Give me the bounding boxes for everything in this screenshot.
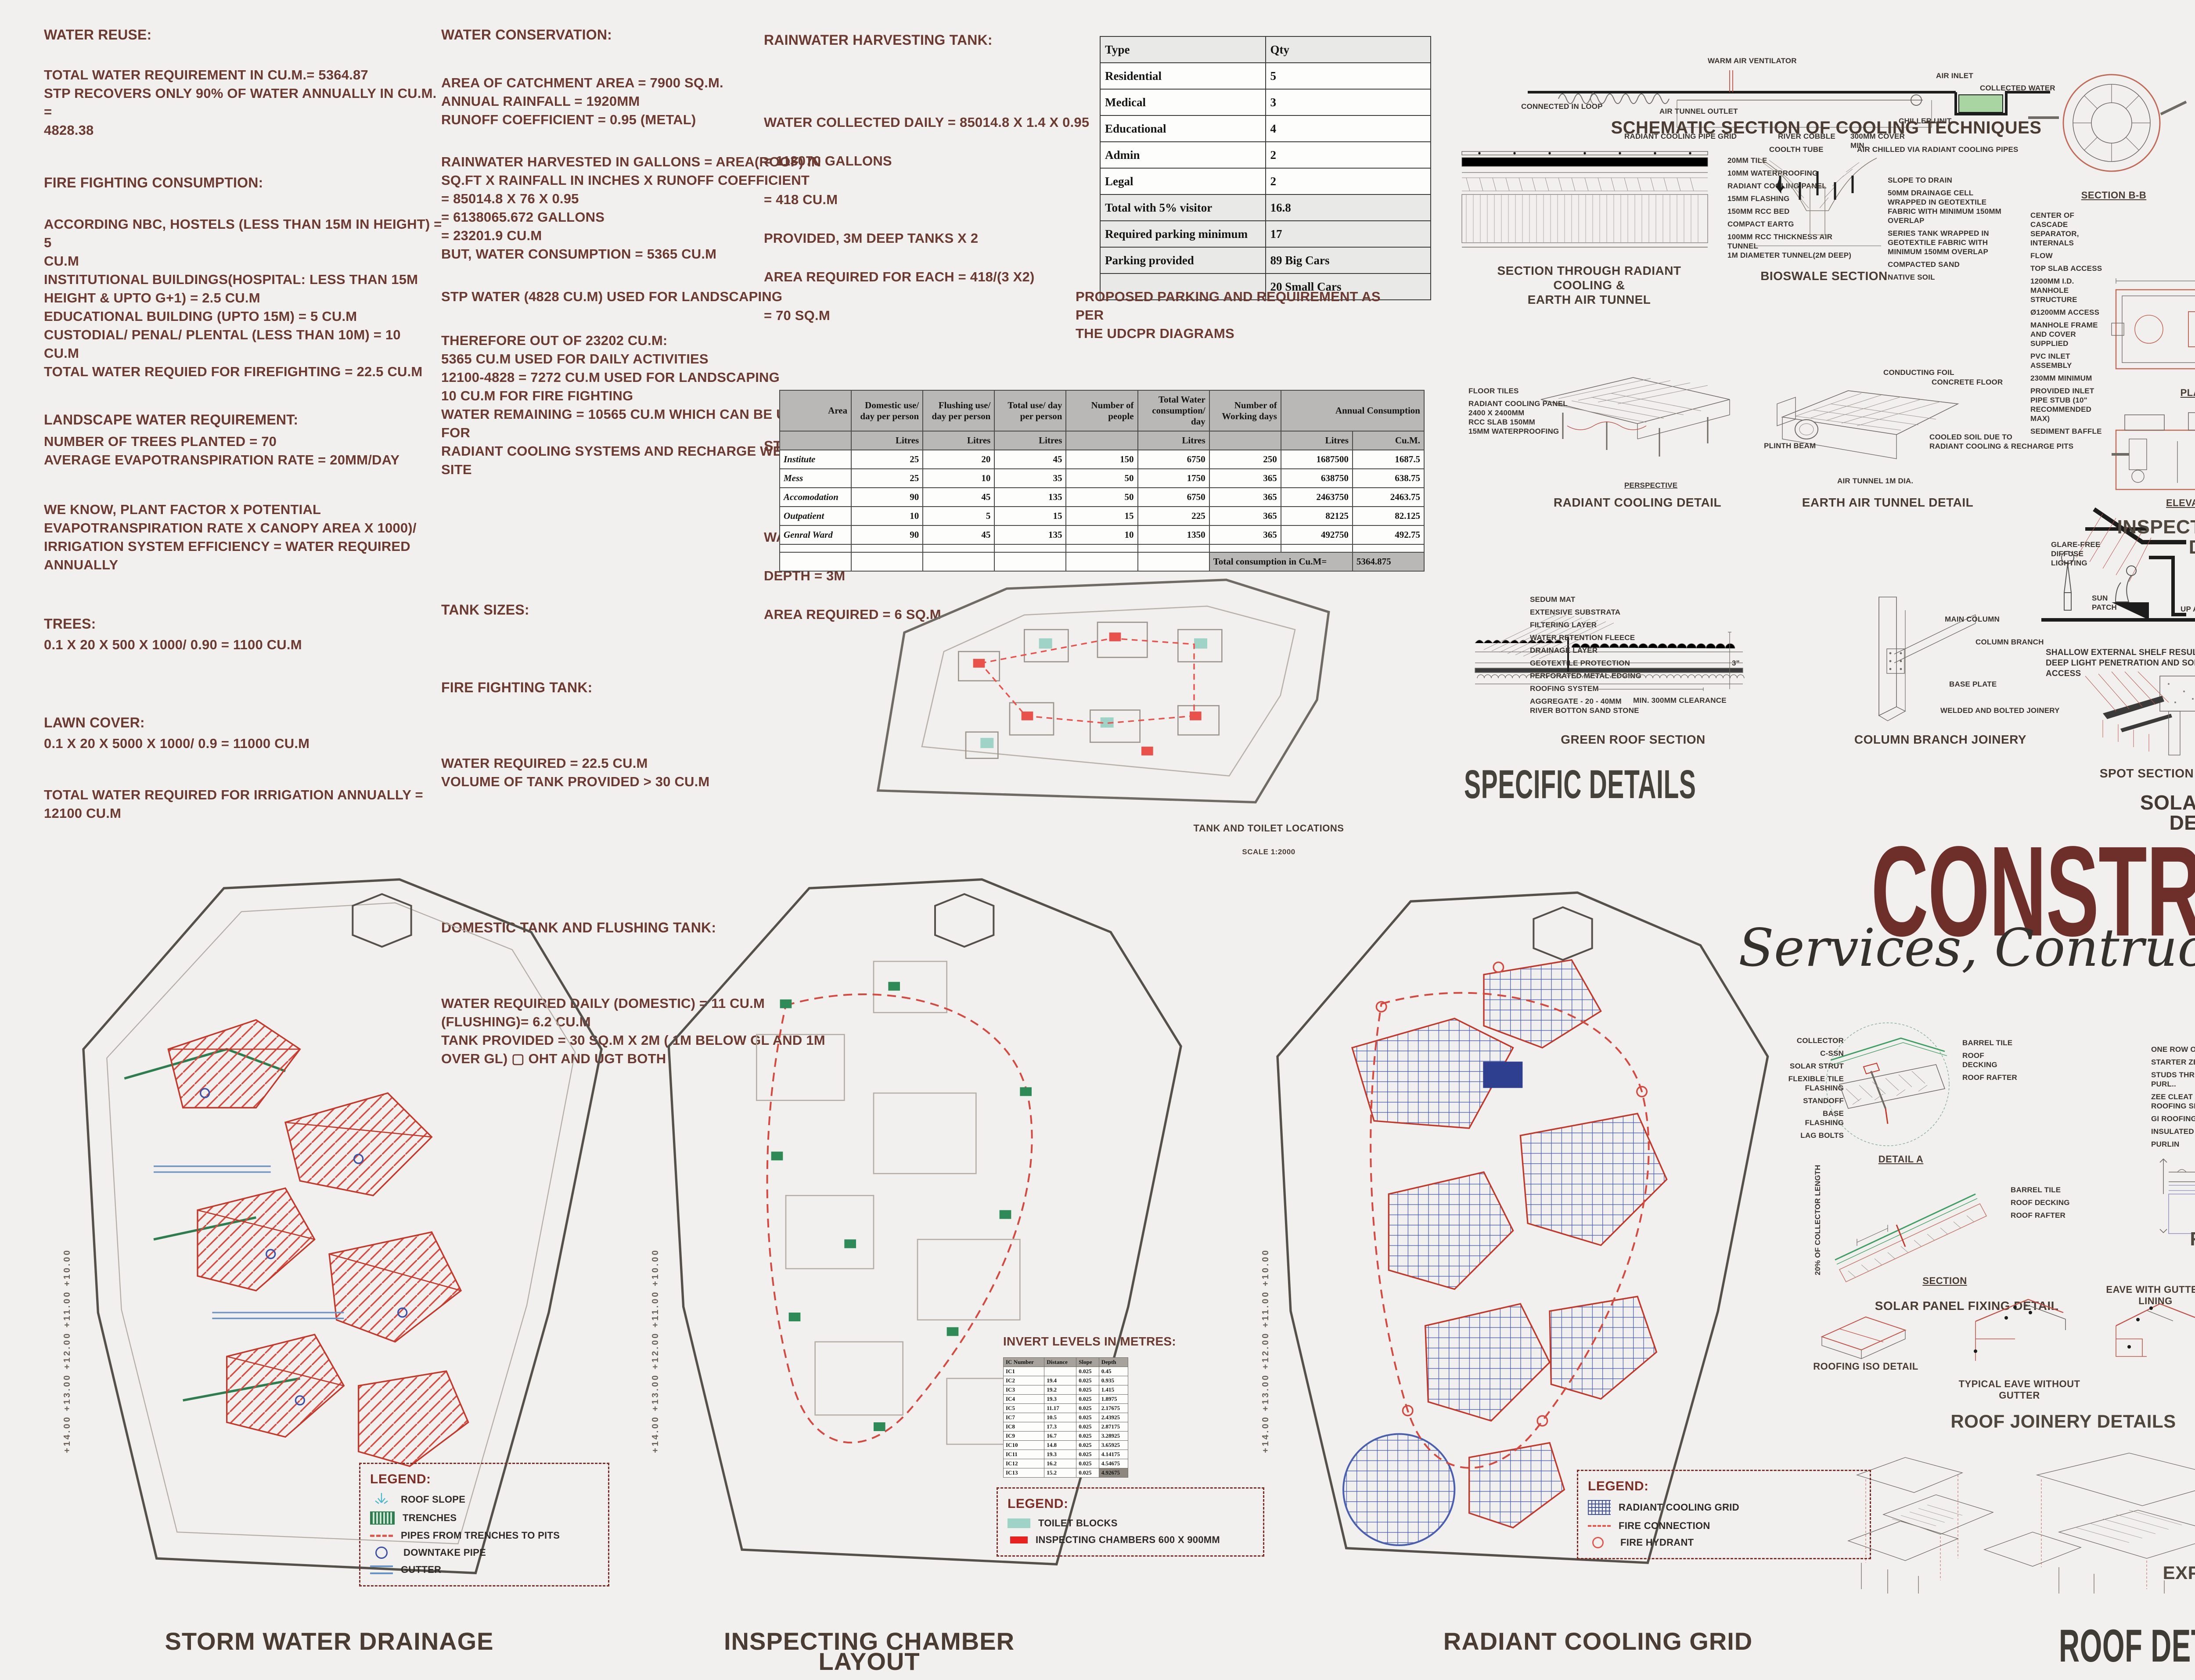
callout-item: INSULATED ROOFING PANELS bbox=[2151, 1127, 2195, 1136]
storm-plan-caption: STORM WATER DRAINAGE bbox=[145, 1631, 514, 1651]
bioswale-callout-river-cobble: RIVER COBBLE bbox=[1778, 132, 1835, 141]
landscape-heading: LANDSCAPE WATER REQUIREMENT: bbox=[44, 410, 439, 429]
callout-item: COMPACTED SAND bbox=[1888, 260, 2002, 269]
table-cell: 4 bbox=[1266, 115, 1431, 142]
inspection-plan-view-diagram bbox=[2112, 281, 2195, 378]
callout-item: 230MM MINIMUM bbox=[2030, 374, 2105, 383]
section-bb-caption: SECTION B-B bbox=[2059, 190, 2169, 201]
table-cell bbox=[851, 544, 923, 552]
table-cell: IC7 bbox=[1004, 1413, 1044, 1422]
spot-section-diagram bbox=[2076, 672, 2195, 759]
table-row: IC1014.80.0253.65925 bbox=[1004, 1441, 1128, 1450]
table-cell: Domestic use/ day per person bbox=[851, 390, 923, 431]
table-cell: 0.025 bbox=[1076, 1422, 1099, 1432]
callout-item: COLLECTOR bbox=[1782, 1036, 1844, 1045]
detail-a-caption: DETAIL A bbox=[1857, 1154, 1945, 1165]
table-cell: Distance bbox=[1044, 1358, 1076, 1367]
table-cell: 35 bbox=[994, 469, 1066, 488]
earth-tunnel-caption: EARTH AIR TUNNEL DETAIL bbox=[1782, 495, 1993, 510]
callout-item: STUDS THROUGH CLEAT INTO PURL.. bbox=[2151, 1070, 2195, 1089]
table-cell: Qty bbox=[1266, 36, 1431, 63]
table-cell: Area bbox=[780, 390, 851, 431]
roof-fixing-section-diagram bbox=[2151, 1141, 2195, 1242]
table-cell: 1.415 bbox=[1099, 1385, 1128, 1395]
table-cell: 11.17 bbox=[1044, 1404, 1076, 1413]
table-cell: IC2 bbox=[1004, 1376, 1044, 1385]
table-row: Required parking minimum17 bbox=[1100, 221, 1431, 247]
rain-tank-heading: RAINWATER HARVESTING TANK: bbox=[764, 31, 1115, 49]
shallow-shelf-callout-sunpatch: SUN PATCH bbox=[2092, 594, 2117, 612]
table-cell: 365 bbox=[1209, 488, 1281, 507]
storm-legend-label-0: ROOF SLOPE bbox=[401, 1494, 465, 1505]
table-cell bbox=[1209, 431, 1281, 450]
table-cell: 3.28925 bbox=[1099, 1432, 1128, 1441]
table-cell: 0.025 bbox=[1076, 1441, 1099, 1450]
table-cell: 16.8 bbox=[1266, 194, 1431, 221]
spot-section-caption: SPOT SECTION bbox=[2063, 766, 2195, 781]
table-row: Mess251035501750365638750638.75 bbox=[780, 469, 1424, 488]
table-cell: Required parking minimum bbox=[1100, 221, 1266, 247]
storm-legend-roof-slope: ROOF SLOPE bbox=[370, 1493, 598, 1506]
green-roof-3in-dim: 3" bbox=[1732, 658, 1740, 668]
table-cell: IC5 bbox=[1004, 1404, 1044, 1413]
table-cell: 19.3 bbox=[1044, 1450, 1076, 1459]
table-cell bbox=[1138, 552, 1209, 571]
earth-tunnel-callout-air-tunnel: AIR TUNNEL 1M DIA. bbox=[1837, 476, 1913, 486]
column-branch-callout-main: MAIN COLUMN bbox=[1945, 615, 2000, 624]
table-row: Outpatient10515152253658212582.125 bbox=[780, 507, 1424, 525]
table-cell: IC9 bbox=[1004, 1432, 1044, 1441]
table-cell: IC11 bbox=[1004, 1450, 1044, 1459]
storm-legend-downtake: DOWNTAKE PIPE bbox=[370, 1547, 598, 1559]
table-cell: 135 bbox=[994, 488, 1066, 507]
table-cell: 6750 bbox=[1138, 488, 1209, 507]
table-cell: 365 bbox=[1209, 525, 1281, 544]
downtake-pipe-icon bbox=[375, 1547, 388, 1559]
table-cell: 365 bbox=[1209, 507, 1281, 525]
table-cell: 0.935 bbox=[1099, 1376, 1128, 1385]
callout-item: C-SSN bbox=[1782, 1049, 1844, 1058]
table-cell bbox=[923, 552, 994, 571]
table-cell: 0.025 bbox=[1076, 1459, 1099, 1468]
table-cell: 0.45 bbox=[1099, 1367, 1128, 1376]
table-cell: 250 bbox=[1209, 450, 1281, 469]
callout-item: BARREL TILE bbox=[2011, 1185, 2072, 1194]
storm-legend-label-4: GUTTER bbox=[401, 1564, 441, 1576]
table-row: Admin2 bbox=[1100, 142, 1431, 168]
radiant-legend: LEGEND: RADIANT COOLING GRID FIRE CONNEC… bbox=[1577, 1470, 1871, 1559]
section-through-caption: SECTION THROUGH RADIANT COOLING & EARTH … bbox=[1466, 263, 1712, 307]
table-cell: IC4 bbox=[1004, 1395, 1044, 1404]
tank-toilet-caption-line1: TANK AND TOILET LOCATIONS bbox=[1194, 823, 1344, 834]
inspection-callouts-left: CENTER OF CASCADE SEPARATOR, INTERNALSFL… bbox=[2030, 211, 2105, 439]
roof-fixing-caption: ROOF FIXING SECTION bbox=[2177, 1229, 2195, 1249]
table-cell: Admin bbox=[1100, 142, 1266, 168]
callout-item: ROOF RAFTER bbox=[2011, 1211, 2072, 1220]
callout-item: EXTENSIVE SUBSTRATA bbox=[1530, 608, 1653, 617]
table-cell: 0.025 bbox=[1076, 1468, 1099, 1478]
table-row: Genral Ward9045135101350365492750492.75 bbox=[780, 525, 1424, 544]
table-cell: 14.8 bbox=[1044, 1441, 1076, 1450]
chamber-legend-label-1: INSPECTING CHAMBERS 600 X 900MM bbox=[1036, 1534, 1220, 1546]
table-cell: Outpatient bbox=[780, 507, 851, 525]
table-row: IC1119.30.0254.14175 bbox=[1004, 1450, 1128, 1459]
table-row: Total with 5% visitor16.8 bbox=[1100, 194, 1431, 221]
chamber-legend-ic: INSPECTING CHAMBERS 600 X 900MM bbox=[1008, 1534, 1253, 1546]
shallow-shelf-callout-glarefree: GLARE-FREE DIFFUSE LIGHTING bbox=[2051, 540, 2101, 568]
column-branch-callout-welded: WELDED AND BOLTED JOINERY bbox=[1940, 706, 2060, 715]
rain-tank-body: WATER COLLECTED DAILY = 85014.8 X 1.4 X … bbox=[764, 103, 1119, 335]
callout-item: FLEXIBLE TILE FLASHING bbox=[1782, 1074, 1844, 1093]
table-cell: 4.14175 bbox=[1099, 1450, 1128, 1459]
table-cell: 2.87175 bbox=[1099, 1422, 1128, 1432]
table-cell bbox=[780, 431, 851, 450]
fire-connection-icon bbox=[1588, 1525, 1611, 1527]
table-row: Total consumption in Cu.M=5364.875 bbox=[780, 552, 1424, 571]
radiant-earth-tunnel-section-diagram bbox=[1462, 147, 1712, 255]
radiant-elevation-markers: +14.00 +13.00 +12.00 +11.00 +10.00 bbox=[1261, 1248, 1271, 1453]
table-cell: 90 bbox=[851, 525, 923, 544]
storm-legend-label-2: PIPES FROM TRENCHES TO PITS bbox=[401, 1530, 560, 1541]
table-cell: 19.4 bbox=[1044, 1376, 1076, 1385]
table-cell bbox=[1066, 552, 1137, 571]
table-cell: 638750 bbox=[1281, 469, 1353, 488]
table-row: IC219.40.0250.935 bbox=[1004, 1376, 1128, 1385]
table-cell: 25 bbox=[851, 469, 923, 488]
table-cell: Slope bbox=[1076, 1358, 1099, 1367]
radiant-legend-grid: RADIANT COOLING GRID bbox=[1588, 1500, 1860, 1515]
table-cell: 17 bbox=[1266, 221, 1431, 247]
table-row: IC319.20.0251.415 bbox=[1004, 1385, 1128, 1395]
schematic-callout-collected-water: COLLECTED WATER bbox=[1980, 83, 2055, 93]
table-cell: 15.2 bbox=[1044, 1468, 1076, 1478]
table-cell bbox=[1353, 544, 1424, 552]
schematic-callout-air-inlet: AIR INLET bbox=[1936, 71, 1973, 80]
callout-item: FILTERING LAYER bbox=[1530, 620, 1653, 630]
table-row: IC511.170.0252.17675 bbox=[1004, 1404, 1128, 1413]
callout-item: GEOTEXTILE PROTECTION bbox=[1530, 658, 1653, 668]
table-cell: Litres bbox=[1138, 431, 1209, 450]
table-cell: 0.025 bbox=[1076, 1367, 1099, 1376]
table-cell: 1687.5 bbox=[1353, 450, 1424, 469]
table-cell: Litres bbox=[923, 431, 994, 450]
callout-item: FLOOR TILES bbox=[1468, 386, 1578, 396]
table-row: IC916.70.0253.28925 bbox=[1004, 1432, 1128, 1441]
roofing-iso-caption: ROOFING ISO DETAIL bbox=[1809, 1361, 1923, 1372]
earth-tunnel-callout-foil: CONDUCTING FOIL bbox=[1883, 368, 1954, 377]
table-header-row: AreaDomestic use/ day per personFlushing… bbox=[780, 390, 1424, 431]
callout-item: MANHOLE FRAME AND COVER SUPPLIED bbox=[2030, 320, 2105, 348]
storm-legend: LEGEND: ROOF SLOPE TRENCHES PIPES FROM T… bbox=[359, 1463, 609, 1586]
specific-details-big-label: SPECIFIC DETAILS bbox=[1464, 762, 1839, 808]
trees-heading: TREES: bbox=[44, 615, 439, 633]
table-row: IC10.0250.45 bbox=[1004, 1367, 1128, 1376]
table-cell: 1750 bbox=[1138, 469, 1209, 488]
green-roof-clearance-dim: MIN. 300MM CLEARANCE bbox=[1633, 696, 1727, 705]
roofing-iso-diagram bbox=[1813, 1310, 1910, 1359]
solar-panel-fixing-section-diagram bbox=[1831, 1176, 2006, 1273]
table-cell: 0.025 bbox=[1076, 1376, 1099, 1385]
green-roof-caption: GREEN ROOF SECTION bbox=[1510, 732, 1756, 747]
table-cell: 50 bbox=[1066, 488, 1137, 507]
fire-tank-heading: FIRE FIGHTING TANK: bbox=[441, 678, 836, 697]
radiant-grid-icon bbox=[1588, 1500, 1611, 1515]
pipes-icon bbox=[370, 1535, 393, 1537]
table-cell: 1.8975 bbox=[1099, 1395, 1128, 1404]
landscape-body: NUMBER OF TREES PLANTED = 70 AVERAGE EVA… bbox=[44, 432, 443, 469]
fire-hydrant-icon bbox=[1592, 1537, 1604, 1548]
table-cell: Number of Working days bbox=[1209, 390, 1281, 431]
radiant-legend-label-1: FIRE CONNECTION bbox=[1619, 1520, 1710, 1532]
radiant-legend-label-2: FIRE HYDRANT bbox=[1620, 1537, 1694, 1548]
bioswale-diagram bbox=[1754, 145, 1881, 255]
table-cell: 20 bbox=[923, 450, 994, 469]
table-cell: IC12 bbox=[1004, 1459, 1044, 1468]
table-cell: 16.2 bbox=[1044, 1459, 1076, 1468]
table-cell: 5 bbox=[923, 507, 994, 525]
table-cell: 82.125 bbox=[1353, 507, 1424, 525]
table-cell: IC13 bbox=[1004, 1468, 1044, 1478]
table-cell: Residential bbox=[1100, 63, 1266, 89]
radiant-legend-fire-connection: FIRE CONNECTION bbox=[1588, 1520, 1860, 1532]
table-cell: 2463750 bbox=[1281, 488, 1353, 507]
weknow-body: WE KNOW, PLANT FACTOR X POTENTIAL EVAPOT… bbox=[44, 500, 443, 574]
table-cell: 1687500 bbox=[1281, 450, 1353, 469]
table-cell: 10.5 bbox=[1044, 1413, 1076, 1422]
trees-body: 0.1 X 20 X 500 X 1000/ 0.90 = 1100 CU.M bbox=[44, 636, 443, 654]
schematic-callout-connected-loop: CONNECTED IN LOOP bbox=[1521, 102, 1603, 111]
table-cell: 2.17675 bbox=[1099, 1404, 1128, 1413]
table-row: Educational4 bbox=[1100, 115, 1431, 142]
table-cell: 82125 bbox=[1281, 507, 1353, 525]
roof-fixing-callouts: ONE ROW OF TAPE SEALANTSTARTER ZEE CLEAT… bbox=[2151, 1045, 2195, 1152]
earth-tunnel-callout-plinth: PLINTH BEAM bbox=[1764, 441, 1816, 450]
table-cell: Genral Ward bbox=[780, 525, 851, 544]
schematic-callout-warm-air-ventilator: WARM AIR VENTILATOR bbox=[1708, 56, 1797, 65]
table-cell: 10 bbox=[1066, 525, 1137, 544]
callout-item: 1200MM I.D. MANHOLE STRUCTURE bbox=[2030, 277, 2105, 304]
table-cell: 45 bbox=[923, 488, 994, 507]
table-cell: IC1 bbox=[1004, 1367, 1044, 1376]
inspection-chamber-caption: INSPECTION CHAMBER DETAILS bbox=[2094, 517, 2195, 558]
gutter-icon bbox=[370, 1565, 393, 1574]
table-cell: 492750 bbox=[1281, 525, 1353, 544]
chamber-elevation-markers: +14.00 +13.00 +12.00 +11.00 +10.00 bbox=[651, 1248, 661, 1453]
table-cell: 90 bbox=[851, 488, 923, 507]
table-cell bbox=[923, 544, 994, 552]
table-cell bbox=[994, 552, 1066, 571]
table-cell: 0.025 bbox=[1076, 1404, 1099, 1413]
table-row bbox=[780, 544, 1424, 552]
callout-item: TOP SLAB ACCESS bbox=[2030, 264, 2105, 273]
callout-item: RADIANT COOLING PANEL 2400 X 2400MM RCC … bbox=[1468, 399, 1578, 436]
table-cell: 45 bbox=[923, 525, 994, 544]
toilet-blocks-icon bbox=[1008, 1518, 1030, 1528]
roof-details-big-label: ROOF DETAILS bbox=[2059, 1620, 2195, 1673]
table-cell: 2 bbox=[1266, 168, 1431, 194]
callout-item: SEDUM MAT bbox=[1530, 595, 1653, 604]
table-cell: IC8 bbox=[1004, 1422, 1044, 1432]
chamber-plan-caption: INSPECTING CHAMBER LAYOUT bbox=[676, 1631, 1062, 1672]
inspection-elevation-diagram bbox=[2112, 410, 2195, 494]
lawn-body: 0.1 X 20 X 5000 X 1000/ 0.9 = 11000 CU.M bbox=[44, 734, 443, 753]
table-cell: Parking provided bbox=[1100, 247, 1266, 273]
callout-item: ZEE CLEAT AND BENT ROOFING SHEET bbox=[2151, 1092, 2195, 1111]
earth-tunnel-callout-floor: CONCRETE FLOOR bbox=[1932, 378, 2003, 387]
table-cell: 2463.75 bbox=[1353, 488, 1424, 507]
trenches-icon bbox=[370, 1511, 395, 1525]
table-row: IC419.30.0251.8975 bbox=[1004, 1395, 1128, 1404]
table-cell: 10 bbox=[923, 469, 994, 488]
bioswale-caption: BIOSWALE SECTION bbox=[1752, 269, 1896, 283]
solar-fix-section-callouts: BARREL TILEROOF DECKINGROOF RAFTER bbox=[2011, 1185, 2072, 1223]
table-header-row: LitresLitresLitresLitresLitresCu.M. bbox=[780, 431, 1424, 450]
table-cell: Cu.M. bbox=[1353, 431, 1424, 450]
table-cell: Total consumption in Cu.M= bbox=[1209, 552, 1353, 571]
table-cell: 365 bbox=[1209, 469, 1281, 488]
inspection-section-bb-diagram bbox=[2055, 66, 2169, 180]
callout-item: SEDIMENT BAFFLE bbox=[2030, 427, 2105, 436]
invert-levels-table: IC NumberDistanceSlopeDepthIC10.0250.45I… bbox=[1003, 1357, 1128, 1478]
eave-gutter-caption: EAVE WITH GUTTER LINING bbox=[2090, 1284, 2195, 1307]
table-cell: 19.3 bbox=[1044, 1395, 1076, 1404]
table-cell: IC3 bbox=[1004, 1385, 1044, 1395]
table-cell: Educational bbox=[1100, 115, 1266, 142]
table-row: Medical3 bbox=[1100, 89, 1431, 115]
callout-item: STARTER ZEE CLEAT bbox=[2151, 1058, 2195, 1067]
solar-fix-rot-label: 20% OF COLLECTOR LENGTH bbox=[1813, 1165, 1822, 1275]
water-consumption-table: AreaDomestic use/ day per personFlushing… bbox=[779, 390, 1425, 572]
table-cell: 150 bbox=[1066, 450, 1137, 469]
table-cell: Flushing use/ day per person bbox=[923, 390, 994, 431]
storm-legend-title: LEGEND: bbox=[370, 1472, 598, 1487]
radiant-legend-label-0: RADIANT COOLING GRID bbox=[1619, 1502, 1739, 1513]
table-cell: 0.025 bbox=[1076, 1450, 1099, 1459]
storm-legend-trenches: TRENCHES bbox=[370, 1511, 598, 1525]
bioswale-callout-cover: 300MM COVER MIN. bbox=[1850, 132, 1905, 150]
table-cell bbox=[994, 544, 1066, 552]
roof-joinery-caption: ROOF JOINERY DETAILS bbox=[1940, 1411, 2186, 1432]
table-row: Parking provided89 Big Cars bbox=[1100, 247, 1431, 273]
tank-toilet-site-plan bbox=[834, 571, 1339, 810]
table-cell: 5 bbox=[1266, 63, 1431, 89]
table-cell: Litres bbox=[1281, 431, 1353, 450]
table-cell: Total use/ day per person bbox=[994, 390, 1066, 431]
board-subtitle: Services, Contruction Techniques & Detai… bbox=[1738, 917, 2195, 978]
callout-item: SOLAR STRUT bbox=[1782, 1061, 1844, 1071]
callout-item: Ø1200MM ACCESS bbox=[2030, 308, 2105, 317]
fire-tank-body: WATER REQUIRED = 22.5 CU.M VOLUME OF TAN… bbox=[441, 754, 841, 791]
fire-fighting-heading: FIRE FIGHTING CONSUMPTION: bbox=[44, 173, 439, 192]
callout-item: PURLIN bbox=[2151, 1140, 2195, 1149]
callout-item: SERIES TANK WRAPPED IN GEOTEXTILE FABRIC… bbox=[1888, 229, 2002, 256]
schematic-callout-air-tunnel-outlet: AIR TUNNEL OUTLET bbox=[1659, 107, 1738, 116]
table-cell: Total with 5% visitor bbox=[1100, 194, 1266, 221]
table-cell: 135 bbox=[994, 525, 1066, 544]
table-row: IC1315.20.0254.92675 bbox=[1004, 1468, 1128, 1478]
storm-legend-pipes: PIPES FROM TRENCHES TO PITS bbox=[370, 1530, 598, 1541]
storm-legend-gutter: GUTTER bbox=[370, 1564, 598, 1576]
table-cell: 3 bbox=[1266, 89, 1431, 115]
table-row: IC817.30.0252.87175 bbox=[1004, 1422, 1128, 1432]
table-cell: Mess bbox=[780, 469, 851, 488]
table-cell: 3.65925 bbox=[1099, 1441, 1128, 1450]
column-branch-caption: COLUMN BRANCH JOINERY bbox=[1844, 732, 2037, 747]
table-cell bbox=[1066, 431, 1137, 450]
table-cell: Litres bbox=[994, 431, 1066, 450]
callout-item: STANDOFF bbox=[1782, 1096, 1844, 1105]
table-cell: 0.025 bbox=[1076, 1432, 1099, 1441]
table-cell: 2 bbox=[1266, 142, 1431, 168]
callout-item: BARREL TILE bbox=[1962, 1038, 2019, 1047]
table-row: Residential5 bbox=[1100, 63, 1431, 89]
invert-levels-heading: INVERT LEVELS IN METRES: bbox=[1003, 1332, 1223, 1351]
column-branch-callout-branch: COLUMN BRANCH bbox=[1975, 637, 2044, 647]
callout-item: GI ROOFING SHEET bbox=[2151, 1114, 2195, 1123]
callout-item: BASE FLASHING bbox=[1782, 1109, 1844, 1127]
tank-toilet-caption: TANK AND TOILET LOCATIONS SCALE 1:2000 bbox=[1185, 811, 1352, 858]
table-cell: 4.54675 bbox=[1099, 1459, 1128, 1468]
callout-item: DRAINAGE LAYER bbox=[1530, 646, 1653, 655]
total-irrigation-body: TOTAL WATER REQUIRED FOR IRRIGATION ANNU… bbox=[44, 786, 443, 823]
earth-air-tunnel-diagram bbox=[1769, 378, 1967, 474]
tank-toilet-caption-line2: SCALE 1:2000 bbox=[1242, 848, 1295, 856]
storm-legend-label-3: DOWNTAKE PIPE bbox=[403, 1547, 486, 1558]
table-cell bbox=[1281, 544, 1353, 552]
table-cell: Institute bbox=[780, 450, 851, 469]
table-cell: 50 bbox=[1066, 469, 1137, 488]
table-cell: 638.75 bbox=[1353, 469, 1424, 488]
radiant-plan-caption: RADIANT COOLING GRID bbox=[1422, 1631, 1774, 1651]
section-caption: SECTION bbox=[1901, 1275, 1989, 1287]
table-row: Legal2 bbox=[1100, 168, 1431, 194]
roof-slope-icon bbox=[370, 1493, 393, 1506]
table-cell: Accomodation bbox=[780, 488, 851, 507]
table-cell: 0.025 bbox=[1076, 1395, 1099, 1404]
table-cell: 10 bbox=[851, 507, 923, 525]
table-cell: Litres bbox=[851, 431, 923, 450]
table-cell: 17.3 bbox=[1044, 1422, 1076, 1432]
water-reuse-body: TOTAL WATER REQUIREMENT IN CU.M.= 5364.8… bbox=[44, 66, 443, 140]
table-cell bbox=[851, 552, 923, 571]
callout-item: CENTER OF CASCADE SEPARATOR, INTERNALS bbox=[2030, 211, 2105, 248]
shelf-view-callout-rail: RAIL FOR MOVING UP AND DOWN bbox=[2174, 586, 2195, 614]
table-cell: IC Number bbox=[1004, 1358, 1044, 1367]
table-cell: 5364.875 bbox=[1353, 552, 1424, 571]
water-reuse-heading: WATER REUSE: bbox=[44, 25, 439, 44]
table-cell: Legal bbox=[1100, 168, 1266, 194]
table-cell bbox=[1138, 544, 1209, 552]
table-cell bbox=[1209, 544, 1281, 552]
callout-item: NATIVE SOIL bbox=[1888, 273, 2002, 282]
table-cell: Total Water consumption/ day bbox=[1138, 390, 1209, 431]
table-cell: Depth bbox=[1099, 1358, 1128, 1367]
table-cell: 492.75 bbox=[1353, 525, 1424, 544]
storm-legend-label-1: TRENCHES bbox=[403, 1512, 457, 1524]
callout-item: WATER RETENTION FLEECE bbox=[1530, 633, 1653, 642]
table-cell: 225 bbox=[1138, 507, 1209, 525]
radiant-detail-callouts: FLOOR TILESRADIANT COOLING PANEL 2400 X … bbox=[1468, 386, 1578, 439]
bioswale-callouts-right: SLOPE TO DRAIN50MM DRAINAGE CELL WRAPPED… bbox=[1888, 176, 2002, 285]
table-cell: 25 bbox=[851, 450, 923, 469]
table-row: Accomodation904513550675036524637502463.… bbox=[780, 488, 1424, 507]
callout-item: LAG BOLTS bbox=[1782, 1131, 1844, 1140]
table-row: Institute252045150675025016875001687.5 bbox=[780, 450, 1424, 469]
table-cell bbox=[780, 544, 851, 552]
lawn-heading: LAWN COVER: bbox=[44, 713, 439, 732]
callout-item: FLOW bbox=[2030, 251, 2105, 260]
chamber-legend-label-0: TOILET BLOCKS bbox=[1038, 1518, 1118, 1529]
